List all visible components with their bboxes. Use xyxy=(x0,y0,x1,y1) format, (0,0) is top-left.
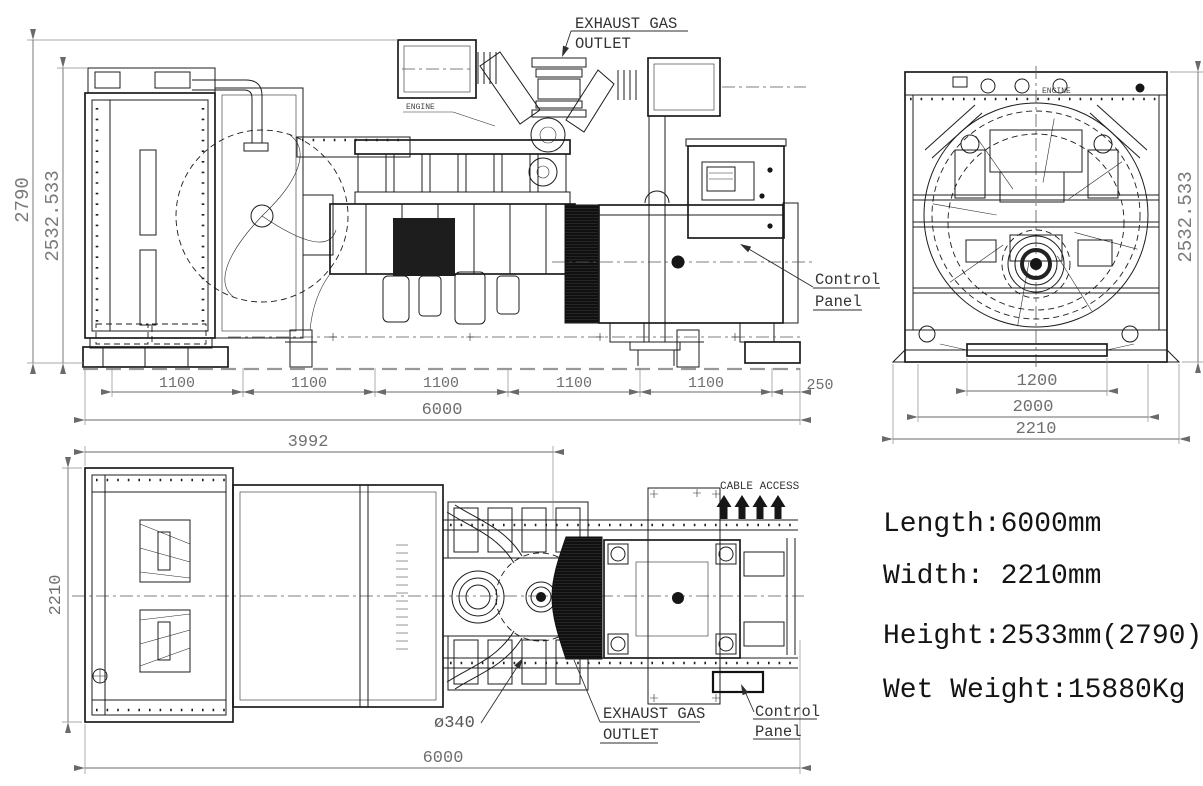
alternator-grille-plan xyxy=(552,537,602,659)
engine-tag-side: ENGINE xyxy=(406,103,435,112)
spec-width: Width: 2210mm xyxy=(883,561,1101,592)
control-panel-side xyxy=(686,139,786,238)
exhaust-diameter-label: ø340 xyxy=(434,714,475,733)
plan-radiator xyxy=(85,468,233,722)
end-view: 2532.533 1200 2000 2210 ENGINE xyxy=(893,66,1203,444)
crank-pulley xyxy=(452,571,504,623)
control-panel-plan-label-line1: Control xyxy=(755,703,820,721)
exhaust-outlet-plan-label-line1: EXHAUST GAS xyxy=(603,705,705,723)
control-panel-label-line2: Panel xyxy=(815,293,862,311)
engine xyxy=(297,137,575,330)
dim-bay-5: 1100 xyxy=(688,375,724,392)
air-inlet-grille xyxy=(565,205,599,323)
dim-end-height: 2532.533 xyxy=(1175,171,1197,262)
lifting-hole xyxy=(672,256,685,269)
dim-bay-3: 1100 xyxy=(423,375,459,392)
spec-length: Length:6000mm xyxy=(883,509,1101,540)
dim-length-overall: 6000 xyxy=(422,401,463,420)
spec-height: Height:2533mm(2790) xyxy=(883,621,1202,652)
exhaust-outlet-label-line2: OUTLET xyxy=(575,35,631,53)
end-frame xyxy=(893,66,1179,370)
exhaust-outlet-plan-label-line2: OUTLET xyxy=(603,726,659,744)
dim-height-body: 2532.533 xyxy=(42,170,64,261)
silencer-right xyxy=(648,58,720,116)
radiator xyxy=(85,68,215,348)
engine-tag-end: ENGINE xyxy=(1042,87,1071,96)
exhaust-support-column xyxy=(630,116,680,366)
dim-width-mid: 2000 xyxy=(1013,398,1054,417)
turbocharger-upper xyxy=(531,118,565,152)
control-panel-plan-label-line2: Panel xyxy=(755,723,802,741)
cable-access-label: CABLE ACCESS xyxy=(720,481,800,493)
spec-wet-weight: Wet Weight:15880Kg xyxy=(883,675,1185,706)
spec-block: Length:6000mm Width: 2210mm Height:2533m… xyxy=(883,509,1202,706)
dim-height-overall: 2790 xyxy=(12,177,34,223)
dim-plan-width: 2210 xyxy=(47,575,66,616)
side-view: 2790 2532.533 1100 1100 1100 1100 1100 2… xyxy=(12,15,880,425)
genset-dimension-drawing: 2790 2532.533 1100 1100 1100 1100 1100 2… xyxy=(0,0,1203,786)
hmi-display xyxy=(702,162,754,200)
dim-bay-2: 1100 xyxy=(291,375,327,392)
drawing-svg: 2790 2532.533 1100 1100 1100 1100 1100 2… xyxy=(0,0,1203,786)
exhaust-outlet-flange xyxy=(532,58,586,117)
dim-plan-length: 6000 xyxy=(423,749,464,768)
plan-view: CABLE ACCESS 3992 2210 6000 ø340 EXH xyxy=(47,433,820,774)
dim-end-offset: 250 xyxy=(806,377,833,394)
base-skid xyxy=(83,330,800,369)
side-view-labels: EXHAUST GAS OUTLET Control Panel ENGINE xyxy=(403,15,880,311)
engine-mount xyxy=(290,330,312,367)
turbocharger-lower xyxy=(529,158,557,186)
injection-pump-cluster xyxy=(393,218,455,276)
control-panel-label-line1: Control xyxy=(815,271,880,289)
dim-bay-4: 1100 xyxy=(556,375,592,392)
exhaust-outlet-label-line1: EXHAUST GAS xyxy=(575,15,677,33)
dim-width-base: 1200 xyxy=(1017,372,1058,391)
dim-width-overall: 2210 xyxy=(1016,420,1057,439)
dim-length-front: 3992 xyxy=(288,433,329,452)
alternator-end-plate xyxy=(783,203,798,323)
alternator xyxy=(552,203,812,342)
cable-access: CABLE ACCESS xyxy=(693,481,800,519)
dim-bay-1: 1100 xyxy=(159,375,195,392)
exhaust-duct-left xyxy=(480,52,540,124)
exhaust-system xyxy=(398,40,806,366)
